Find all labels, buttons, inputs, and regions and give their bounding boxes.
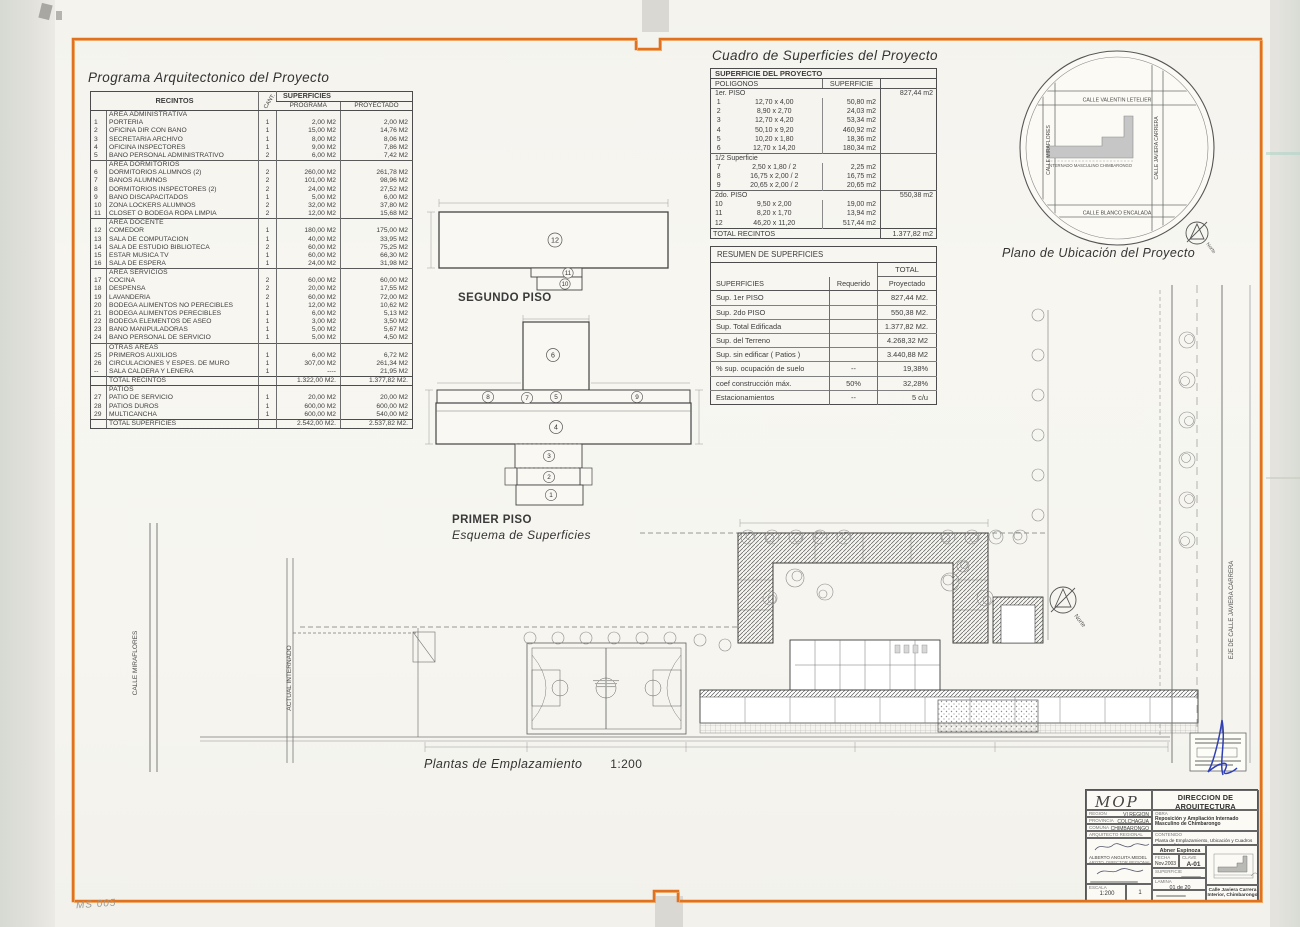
table-cell: 6,00 M2 <box>341 194 413 202</box>
table-cell <box>341 219 413 228</box>
arquitecto-label: ARQUITECTO REGIONAL <box>1087 832 1151 838</box>
address-line2: Interior, Chimbarongo <box>1207 893 1258 898</box>
programa-data-row: 12COMEDOR1180,00 M2175,00 M2 <box>91 227 413 235</box>
north-arrow-label: Norte <box>1072 614 1086 630</box>
table-cell: 16,75 x 2,00 / 2 <box>727 172 823 181</box>
table-cell: 10,20 x 1,80 <box>727 135 823 144</box>
table-cell: 2 <box>91 127 107 135</box>
table-cell: 8 <box>711 172 727 181</box>
table-cell: 180,34 m2 <box>823 144 881 154</box>
table-cell: 15,68 M2 <box>341 210 413 219</box>
address-line1: Calle Javiera Carrera <box>1207 886 1258 893</box>
table-cell <box>259 219 277 228</box>
programa-data-row: 9BAÑO DISCAPACITADOS15,00 M26,00 M2 <box>91 194 413 202</box>
table-cell: BAÑO PERSONAL ADMINISTRATIVO <box>107 152 259 161</box>
programa-data-row: 4OFICINA INSPECTORES19,00 M27,86 M2 <box>91 144 413 152</box>
copia-cell: 1 <box>1126 884 1152 901</box>
title-block: MOP DIRECCION DE ARQUITECTURA OFICINA RE… <box>1085 789 1258 901</box>
table-cell: 7 <box>91 177 107 185</box>
table-cell: 31,98 M2 <box>341 260 413 269</box>
table-cell: 50,10 x 9,20 <box>727 126 823 135</box>
table-cell: 1 <box>711 98 727 107</box>
table-cell: 9 <box>711 181 727 191</box>
table-cell: 2 <box>259 169 277 177</box>
table-cell <box>881 116 937 125</box>
table-cell: 15,00 M2 <box>277 127 341 135</box>
programa-data-row: 7BAÑOS ALUMNOS2101,00 M298,96 M2 <box>91 177 413 185</box>
fold-tab-bottom <box>655 896 683 927</box>
header-recintos: RECINTOS <box>91 92 259 111</box>
primer-piso-label: PRIMER PISO <box>452 514 532 526</box>
table-cell: 2,25 m2 <box>823 163 881 172</box>
table-cell <box>881 126 937 135</box>
segundo-piso-label: SEGUNDO PISO <box>458 292 552 304</box>
table-cell: 1 <box>259 236 277 244</box>
resumen-title: RESUMEN DE SUPERFICIES <box>711 247 937 263</box>
table-cell <box>341 269 413 278</box>
table-cell: 2 <box>259 177 277 185</box>
direccion-title: DIRECCION DE ARQUITECTURA <box>1153 791 1258 810</box>
table-cell: 1.377,82 m2 <box>881 228 937 238</box>
svg-text:10: 10 <box>562 282 569 288</box>
programa-data-row: 14SALA DE ESTUDIO BIBLIOTECA260,00 M275,… <box>91 244 413 252</box>
table-cell: 2,00 M2 <box>277 119 341 127</box>
table-cell: 2 <box>259 202 277 210</box>
table-cell: 260,00 M2 <box>277 169 341 177</box>
clave-cell: CLAVE A-01 <box>1179 854 1206 868</box>
table-cell: AREA ADMINISTRATIVA <box>107 111 259 120</box>
table-cell: 175,00 M2 <box>341 227 413 235</box>
north-arrow-icon <box>1186 222 1208 244</box>
table-cell: 8,90 x 2,70 <box>727 107 823 116</box>
table-cell: 16,75 m2 <box>823 172 881 181</box>
table-cell <box>823 153 881 163</box>
signature-squiggle <box>1087 865 1152 877</box>
cuadro-table-body: 1er. PISO827,44 m2112,70 x 4,0050,80 m22… <box>711 89 937 239</box>
table-cell: 1 <box>259 144 277 152</box>
lamina-cell: LAMINA 01 de 20 <box>1152 878 1206 890</box>
table-cell: 7,86 M2 <box>341 144 413 152</box>
table-cell: 75,25 M2 <box>341 244 413 252</box>
svg-text:11: 11 <box>565 271 572 277</box>
table-cell: 7 <box>711 163 727 172</box>
table-cell: 1/2 Superficie <box>711 153 823 163</box>
obra-cell: OBRA Reposición y Ampliación Internado M… <box>1152 810 1259 831</box>
programa-data-row: 8DORMITORIOS INSPECTORES (2)224,00 M227,… <box>91 186 413 194</box>
eje-javiera-carrera-label: EJE DE CALLE JAVIERA CARRERA <box>1229 561 1235 660</box>
extra-cell <box>1152 890 1206 901</box>
table-cell: 11 <box>91 210 107 219</box>
table-cell: 1 <box>259 227 277 235</box>
table-cell <box>881 181 937 191</box>
table-cell: 1 <box>259 127 277 135</box>
table-cell: 12,70 x 14,20 <box>727 144 823 154</box>
table-cell: SECRETARIA ARCHIVO <box>107 136 259 144</box>
contenido-cell: CONTENIDO Planta de Emplazamiento, Ubica… <box>1152 831 1259 845</box>
table-cell <box>341 111 413 120</box>
table-cell: 27,52 M2 <box>341 186 413 194</box>
calle-miraflores-label: CALLE MIRAFLORES <box>132 630 139 695</box>
table-cell <box>259 161 277 170</box>
cuadro-data-row: 109,50 x 2,0019,00 m2 <box>711 200 937 209</box>
table-cell: 16 <box>91 260 107 269</box>
dibujante-cell: Abner Espinoza <box>1152 845 1206 854</box>
table-cell <box>881 153 937 163</box>
table-cell: 1 <box>259 119 277 127</box>
table-cell: AREA DORMITORIOS <box>107 161 259 170</box>
table-cell: 2,50 x 1,80 / 2 <box>727 163 823 172</box>
cuadro-table-header: SUPERFICIE DEL PROYECTO POLIGONOS SUPERF… <box>711 69 937 89</box>
polygon-number-12: 12 <box>548 233 562 247</box>
fecha-value: Nov.2003 <box>1153 861 1178 867</box>
table-cell: 180,00 M2 <box>277 227 341 235</box>
signature-squiggle <box>1087 839 1152 853</box>
table-cell: 6 <box>91 169 107 177</box>
programa-section-row: AREA SERVICIOS <box>91 269 413 278</box>
table-cell: 9,00 M2 <box>277 144 341 152</box>
arquitecto-cell: ARQUITECTO REGIONAL <box>1086 831 1152 838</box>
col-total <box>881 79 937 89</box>
table-cell <box>91 161 107 170</box>
cuadro-data-row: 450,10 x 9,20460,92 m2 <box>711 126 937 135</box>
table-cell <box>91 269 107 278</box>
table-cell: 6,00 M2 <box>277 152 341 161</box>
building-small-right <box>993 597 1043 643</box>
table-cell: 12,70 x 4,20 <box>727 116 823 125</box>
table-cell: 2 <box>259 210 277 219</box>
table-cell: 1er. PISO <box>711 89 823 99</box>
table-cell: 15 <box>91 252 107 260</box>
illegible-text <box>1156 895 1186 897</box>
programa-data-row: 6DORMITORIOS ALUMNOS (2)2260,00 M2261,78… <box>91 169 413 177</box>
multicancha-court <box>527 643 686 734</box>
street-bottom-label: CALLE BLANCO ENCALADA <box>1083 211 1152 217</box>
table-cell: AREA SERVICIOS <box>107 269 259 278</box>
comuna-cell: COMUNA CHIMBARONGO <box>1086 824 1152 831</box>
col-poligonos: POLIGONOS <box>711 79 823 89</box>
comuna-label: COMUNA <box>1087 825 1109 831</box>
svg-text:3: 3 <box>547 453 551 460</box>
table-cell: PORTERIA <box>107 119 259 127</box>
table-cell: 2 <box>259 244 277 252</box>
polygon-number-10: 10 <box>560 279 570 289</box>
obra-value: Reposición y Ampliación Internado Mascul… <box>1153 817 1258 828</box>
table-cell: 33,95 M2 <box>341 236 413 244</box>
table-cell: AREA DOCENTE <box>107 219 259 228</box>
programa-data-row: 3SECRETARIA ARCHIVO18,00 M28,06 M2 <box>91 136 413 144</box>
table-cell: 2 <box>259 186 277 194</box>
polygon-number-7: 7 <box>521 392 532 403</box>
header-superficies: SUPERFICIES <box>277 92 413 102</box>
street-top-label: CALLE VALENTIN LETELIER <box>1083 98 1152 104</box>
cuadro-data-row: 112,70 x 4,0050,80 m2 <box>711 98 937 107</box>
table-cell <box>341 161 413 170</box>
emplazamiento-caption: Plantas de Emplazamiento1:200 <box>424 757 642 771</box>
table-cell: 827,44 m2 <box>881 89 937 99</box>
table-cell: 18,36 m2 <box>823 135 881 144</box>
svg-text:4: 4 <box>554 424 558 431</box>
address-cell: Calle Javiera Carrera Interior, Chimbaro… <box>1206 885 1259 901</box>
table-cell: ESTAR MUSICA TV <box>107 252 259 260</box>
table-cell <box>91 111 107 120</box>
table-cell: 261,78 M2 <box>341 169 413 177</box>
programa-table-header: RECINTOS CANT. SUPERFICIES PROGRAMA PROY… <box>91 92 413 111</box>
region-cell: REGION VI REGION <box>1086 810 1152 817</box>
table-cell: 24,00 M2 <box>277 186 341 194</box>
table-cell: SALA DE ESTUDIO BIBLIOTECA <box>107 244 259 252</box>
scan-edge-right <box>1268 0 1300 927</box>
table-cell <box>823 89 881 99</box>
polygon-number-4: 4 <box>550 421 563 434</box>
svg-text:1: 1 <box>549 492 553 499</box>
svg-text:8: 8 <box>486 394 490 401</box>
primer-piso-sublabel: Esquema de Superficies <box>452 528 591 542</box>
building-rooms-block <box>790 640 940 690</box>
table-cell: 4 <box>711 126 727 135</box>
cuadro-data-row: 118,20 x 1,7013,94 m2 <box>711 209 937 218</box>
svg-text:2: 2 <box>547 474 551 481</box>
svg-text:12: 12 <box>551 235 559 244</box>
table-cell: 14,76 M2 <box>341 127 413 135</box>
polygon-number-6: 6 <box>547 349 560 362</box>
copia-value: 1 <box>1127 885 1151 896</box>
table-cell: 1 <box>91 119 107 127</box>
cuadro-title: Cuadro de Superficies del Proyecto <box>712 48 938 63</box>
table-cell: 8 <box>91 186 107 194</box>
cuadro-group-row: 1er. PISO827,44 m2 <box>711 89 937 99</box>
table-cell <box>881 209 937 218</box>
table-cell: 8,20 x 1,70 <box>727 209 823 218</box>
table-cell: 19,00 m2 <box>823 200 881 209</box>
illegible-text <box>1090 881 1138 883</box>
table-cell: 5,00 M2 <box>277 194 341 202</box>
cuadro-data-row: 510,20 x 1,8018,36 m2 <box>711 135 937 144</box>
table-cell <box>259 111 277 120</box>
floor-outline <box>436 322 691 505</box>
table-cell: 5 <box>711 135 727 144</box>
provincia-label: PROVINCIA <box>1087 818 1114 824</box>
table-cell: 550,38 m2 <box>881 191 937 201</box>
dibujante-name: Abner Espinoza <box>1153 846 1205 854</box>
table-cell: 2 <box>711 107 727 116</box>
svg-text:6: 6 <box>551 352 555 359</box>
cuadro-group-row: 1/2 Superficie <box>711 153 937 163</box>
cuadro-data-row: 28,90 x 2,7024,03 m2 <box>711 107 937 116</box>
table-cell <box>277 111 341 120</box>
programa-section-row: AREA DORMITORIOS <box>91 161 413 170</box>
table-cell: 13,94 m2 <box>823 209 881 218</box>
table-cell: 20,65 x 2,00 / 2 <box>727 181 823 191</box>
table-cell: TOTAL RECINTOS <box>711 228 881 238</box>
mop-logo: MOP <box>1086 790 1152 810</box>
table-cell <box>881 144 937 154</box>
escala-cell: ESCALA 1:200 <box>1086 884 1126 901</box>
signature-box-1: ALBERTO ANGUITA MEDEL ARQTO. DIRECTOR RE… <box>1086 838 1152 864</box>
table-cell: 101,00 M2 <box>277 177 341 185</box>
table-cell: 12,70 x 4,00 <box>727 98 823 107</box>
programa-data-row: 13SALA DE COMPUTACION140,00 M233,95 M2 <box>91 236 413 244</box>
table-cell: 2 <box>259 152 277 161</box>
escala-value: 1:200 <box>1087 891 1125 897</box>
programa-title: Programa Arquitectonico del Proyecto <box>88 70 329 85</box>
table-cell: 14 <box>91 244 107 252</box>
col-superficie: SUPERFICIE <box>823 79 881 89</box>
cuadro-data-row: 1246,20 x 11,20517,44 m2 <box>711 219 937 229</box>
programa-data-row: 10ZONA LOCKERS ALUMNOS232,00 M237,80 M2 <box>91 202 413 210</box>
approval-stamp <box>1190 720 1246 775</box>
table-cell: 50,80 m2 <box>823 98 881 107</box>
table-cell: 24,03 m2 <box>823 107 881 116</box>
table-cell: 1 <box>259 194 277 202</box>
north-arrow-icon <box>1050 587 1076 613</box>
table-cell: 9,50 x 2,00 <box>727 200 823 209</box>
table-cell: ZONA LOCKERS ALUMNOS <box>107 202 259 210</box>
svg-text:7: 7 <box>525 395 529 402</box>
header-proyectado: PROYECTADO <box>341 102 413 111</box>
table-cell: 3 <box>91 136 107 144</box>
header-programa: PROGRAMA <box>277 102 341 111</box>
programa-data-row: 5BAÑO PERSONAL ADMINISTRATIVO26,00 M27,4… <box>91 152 413 161</box>
table-cell: COMEDOR <box>107 227 259 235</box>
floor-outline <box>439 212 668 290</box>
street-calle-miraflores <box>150 523 157 772</box>
header-cant: CANT. <box>259 92 277 111</box>
table-cell: 5 <box>91 152 107 161</box>
programa-data-row: 2OFICINA DIR CON BAÑO115,00 M214,76 M2 <box>91 127 413 135</box>
svg-text:5: 5 <box>554 394 558 401</box>
svg-text:9: 9 <box>635 394 639 401</box>
table-cell: BAÑOS ALUMNOS <box>107 177 259 185</box>
polygon-number-9: 9 <box>631 391 642 402</box>
cuadro-superficies-table: SUPERFICIE DEL PROYECTO POLIGONOS SUPERF… <box>710 68 937 239</box>
provincia-cell: PROVINCIA COLCHAGUA <box>1086 817 1152 824</box>
table-cell: 8,00 M2 <box>277 136 341 144</box>
region-label: REGION <box>1087 811 1107 817</box>
mop-logo-text: MOP <box>1087 791 1151 810</box>
table-cell: SALA DE COMPUTACION <box>107 236 259 244</box>
emplazamiento-label: Plantas de Emplazamiento <box>424 757 582 771</box>
table-cell: 13 <box>91 236 107 244</box>
street-right-label: CALLE JAVIERA CARRERA <box>1154 116 1160 180</box>
building-lower-band <box>700 690 1198 733</box>
signature-box-2 <box>1086 864 1152 884</box>
mini-site-sketch <box>1207 846 1259 885</box>
table-cell: 10 <box>91 202 107 210</box>
polygon-number-1: 1 <box>545 489 556 500</box>
polygon-number-11: 11 <box>563 268 573 278</box>
table-cell <box>881 163 937 172</box>
table-cell: 12 <box>91 227 107 235</box>
polygon-number-8: 8 <box>482 391 493 402</box>
table-cell: 60,00 M2 <box>277 244 341 252</box>
office-header: DIRECCION DE ARQUITECTURA OFICINA REGION… <box>1152 790 1259 810</box>
emplazamiento-scale: 1:200 <box>610 757 642 771</box>
programa-data-row: 11CLOSET O BODEGA ROPA LIMPIA212,00 M215… <box>91 210 413 219</box>
table-cell: 2,00 M2 <box>341 119 413 127</box>
table-cell <box>277 219 341 228</box>
table-cell: 1 <box>259 252 277 260</box>
table-cell: 24,00 M2 <box>277 260 341 269</box>
cuadro-data-row: 920,65 x 2,00 / 220,65 m2 <box>711 181 937 191</box>
cuadro-data-row: 312,70 x 4,2053,34 m2 <box>711 116 937 125</box>
table-cell: 32,00 M2 <box>277 202 341 210</box>
table-cell: 1 <box>259 136 277 144</box>
cuadro-data-row: 816,75 x 2,00 / 216,75 m2 <box>711 172 937 181</box>
shed <box>413 632 435 662</box>
scan-artifact <box>56 11 62 20</box>
programa-section-row: AREA DOCENTE <box>91 219 413 228</box>
table-cell: OFICINA DIR CON BAÑO <box>107 127 259 135</box>
polygon-number-3: 3 <box>543 450 554 461</box>
table-cell: 53,34 m2 <box>823 116 881 125</box>
polygon-number-2: 2 <box>543 471 554 482</box>
table-cell <box>881 98 937 107</box>
superficie-label: SUPERFICIE <box>1153 869 1205 875</box>
table-cell: DORMITORIOS INSPECTORES (2) <box>107 186 259 194</box>
table-cell: BAÑO DISCAPACITADOS <box>107 194 259 202</box>
polygon-number-5: 5 <box>550 391 561 402</box>
fecha-cell: FECHA Nov.2003 <box>1152 854 1179 868</box>
table-cell: 2do. PISO <box>711 191 823 201</box>
cuadro-data-row: 72,50 x 1,80 / 22,25 m2 <box>711 163 937 172</box>
actual-internado-label: ACTUAL INTERNADO <box>286 645 293 711</box>
cuadro-table-title: SUPERFICIE DEL PROYECTO <box>711 69 937 79</box>
blank-cell <box>711 263 878 277</box>
scanned-architectural-sheet: CALLE MIRAFLORES ACTUAL INTERNADO <box>0 0 1300 927</box>
programa-data-row: 16SALA DE ESPERA124,00 M231,98 M2 <box>91 260 413 269</box>
scan-artifact <box>1266 152 1300 155</box>
table-cell: 66,30 M2 <box>341 252 413 260</box>
table-cell: CLOSET O BODEGA ROPA LIMPIA <box>107 210 259 219</box>
total-header: TOTAL <box>878 263 937 277</box>
cuadro-group-row: 2do. PISO550,38 m2 <box>711 191 937 201</box>
table-cell: 3 <box>711 116 727 125</box>
programa-data-row: 1PORTERIA12,00 M22,00 M2 <box>91 119 413 127</box>
table-cell <box>277 269 341 278</box>
cuadro-data-row: 612,70 x 14,20180,34 m2 <box>711 144 937 154</box>
table-cell: SALA DE ESPERA <box>107 260 259 269</box>
table-cell: 20,65 m2 <box>823 181 881 191</box>
table-cell: 60,00 M2 <box>277 252 341 260</box>
programa-data-row: 15ESTAR MUSICA TV160,00 M266,30 M2 <box>91 252 413 260</box>
north-arrow-label: Norte <box>1204 242 1216 256</box>
table-cell: 46,20 x 11,20 <box>727 219 823 229</box>
table-cell: 517,44 m2 <box>823 219 881 229</box>
table-cell <box>881 200 937 209</box>
table-cell: 98,96 M2 <box>341 177 413 185</box>
location-plan-caption: Plano de Ubicación del Proyecto <box>1002 246 1195 260</box>
fold-tab-top <box>642 0 669 32</box>
table-cell: 8,06 M2 <box>341 136 413 144</box>
table-cell <box>881 135 937 144</box>
table-cell: 7,42 M2 <box>341 152 413 161</box>
scan-artifact <box>1266 477 1300 479</box>
scan-edge-left <box>0 0 55 927</box>
table-cell: 40,00 M2 <box>277 236 341 244</box>
cuadro-total-row: TOTAL RECINTOS1.377,82 m2 <box>711 228 937 238</box>
table-cell: 460,92 m2 <box>823 126 881 135</box>
table-cell <box>259 269 277 278</box>
contenido-value: Planta de Emplazamiento, Ubicación y Cua… <box>1153 838 1258 846</box>
table-cell <box>881 107 937 116</box>
table-cell: DORMITORIOS ALUMNOS (2) <box>107 169 259 177</box>
table-cell: OFICINA INSPECTORES <box>107 144 259 152</box>
table-cell <box>881 172 937 181</box>
table-cell: 9 <box>91 194 107 202</box>
table-cell: 37,80 M2 <box>341 202 413 210</box>
location-plan-drawing: CALLE VALENTIN LETELIER CALLE BLANCO ENC… <box>1000 40 1262 268</box>
table-cell <box>823 191 881 201</box>
